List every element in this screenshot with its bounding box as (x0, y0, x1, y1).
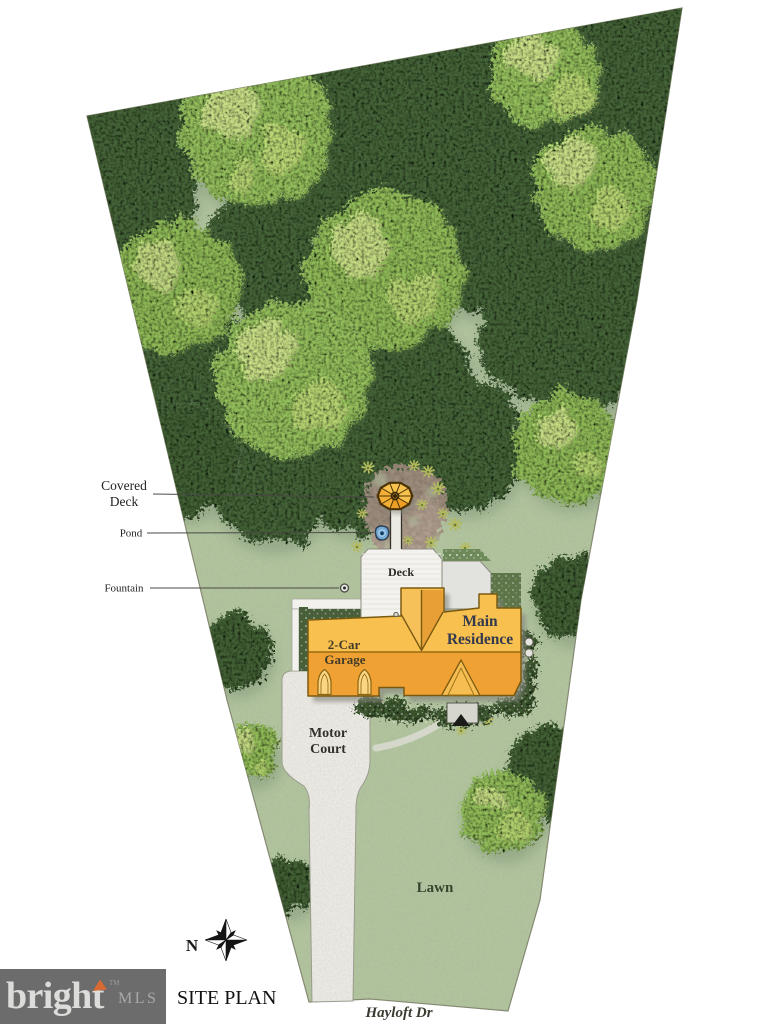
svg-text:Fountain: Fountain (104, 583, 144, 595)
svg-text:Pond: Pond (120, 528, 143, 540)
svg-text:Covered: Covered (101, 478, 147, 493)
svg-text:Court: Court (310, 742, 346, 757)
svg-text:Deck: Deck (110, 494, 139, 509)
svg-text:Motor: Motor (309, 726, 347, 741)
svg-text:Main: Main (462, 613, 498, 630)
svg-text:TM: TM (109, 979, 120, 987)
svg-text:bright: bright (6, 975, 105, 1017)
svg-text:Lawn: Lawn (417, 880, 454, 896)
svg-text:MLS: MLS (118, 990, 158, 1007)
svg-text:2-Car: 2-Car (328, 637, 361, 652)
svg-text:SITE PLAN: SITE PLAN (177, 987, 276, 1009)
svg-text:Deck: Deck (388, 565, 414, 579)
svg-text:Residence: Residence (447, 631, 513, 648)
svg-text:Hayloft Dr: Hayloft Dr (364, 1005, 432, 1021)
svg-text:Garage: Garage (324, 652, 365, 667)
svg-text:N: N (186, 936, 199, 955)
